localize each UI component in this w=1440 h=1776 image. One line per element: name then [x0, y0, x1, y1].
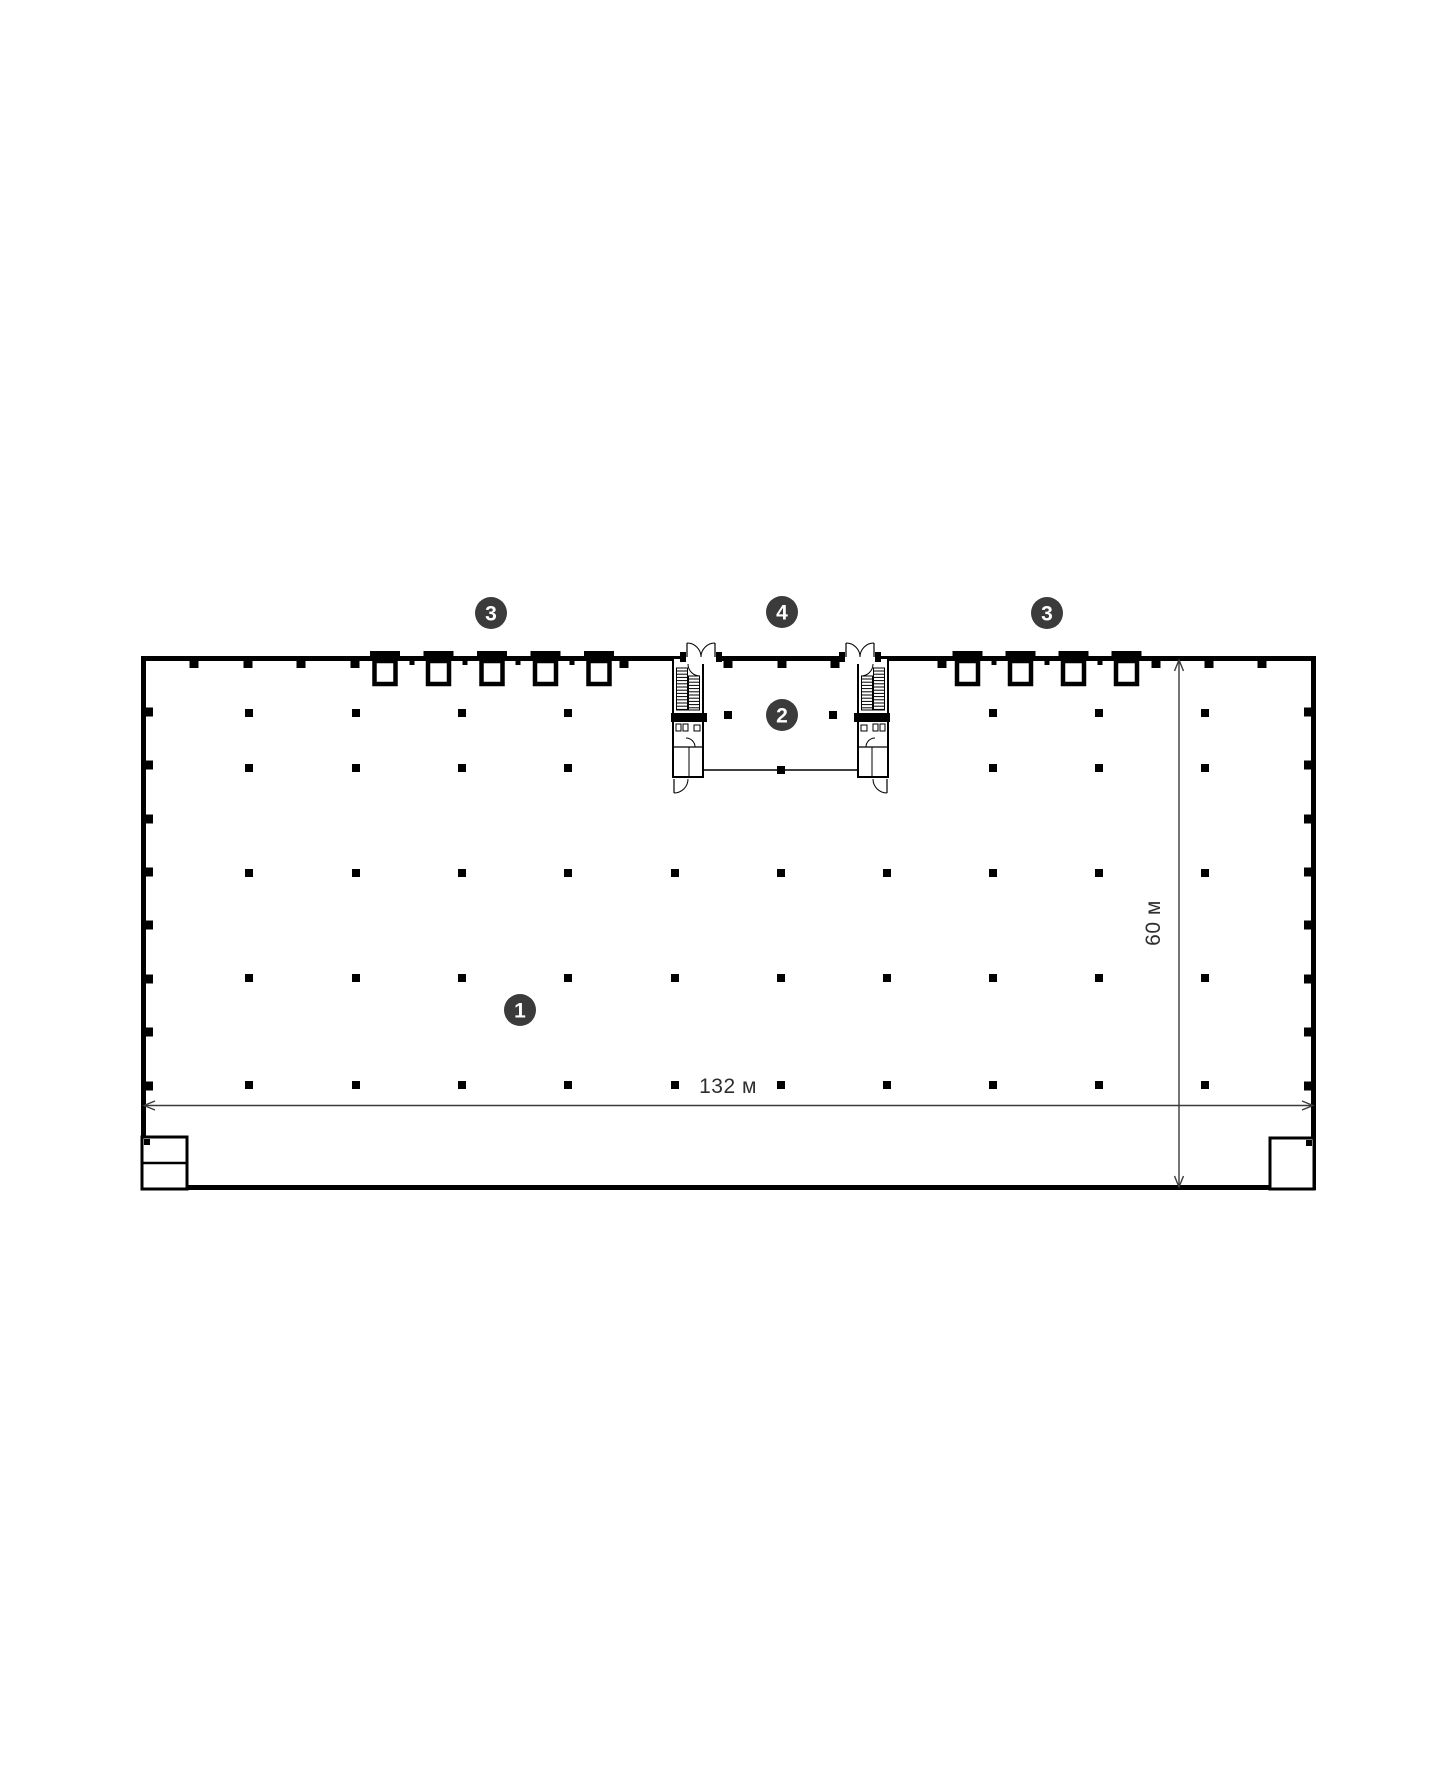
dock-door-lintel — [531, 651, 561, 660]
column — [564, 869, 572, 877]
marker-4: 4 — [766, 596, 798, 628]
column — [829, 711, 837, 719]
marker-number: 3 — [485, 603, 497, 626]
column — [883, 869, 891, 877]
pilaster — [1304, 815, 1312, 824]
column — [1095, 709, 1103, 717]
dock-door-lintel — [424, 651, 454, 660]
column — [989, 974, 997, 982]
dock-door — [482, 661, 503, 684]
stair-landing — [854, 713, 890, 722]
pilaster-small — [1098, 660, 1103, 665]
dock-door — [1010, 661, 1031, 684]
column — [245, 974, 253, 982]
column — [458, 1081, 466, 1089]
pilaster — [1304, 921, 1312, 930]
pilaster — [938, 660, 947, 668]
pilaster — [1304, 761, 1312, 770]
column — [564, 764, 572, 772]
pilaster — [1205, 660, 1214, 668]
column — [989, 869, 997, 877]
entry-jamb — [680, 652, 686, 662]
pilaster — [831, 660, 840, 668]
column — [352, 764, 360, 772]
dock-door — [535, 661, 556, 684]
column — [989, 1081, 997, 1089]
entry-jamb — [716, 652, 722, 662]
pilaster — [145, 708, 153, 717]
pilaster — [1304, 1082, 1312, 1091]
column — [458, 869, 466, 877]
column — [883, 1081, 891, 1089]
pilaster — [144, 1139, 150, 1145]
lobby-tick — [777, 766, 785, 774]
dimension-width-label: 132 м — [699, 1075, 757, 1098]
dimensions: 132 м60 м — [144, 660, 1313, 1187]
pilaster — [1304, 1028, 1312, 1037]
column — [245, 869, 253, 877]
dock-door — [1063, 661, 1084, 684]
column — [352, 974, 360, 982]
pilaster-small — [516, 660, 521, 665]
dock-door — [957, 661, 978, 684]
utility-rooms — [142, 1137, 1314, 1189]
pilaster-small — [992, 660, 997, 665]
floorplan-page: 132 м60 м12343 — [0, 0, 1440, 1776]
column — [989, 709, 997, 717]
dock-door-lintel — [584, 651, 614, 660]
pilaster — [145, 1028, 153, 1037]
column-grid — [245, 709, 1209, 1089]
column — [724, 711, 732, 719]
pilaster — [1306, 1140, 1312, 1146]
column — [352, 1081, 360, 1089]
marker-number: 2 — [776, 705, 788, 728]
pilaster — [145, 761, 153, 770]
stair-landing — [671, 713, 707, 722]
pilaster — [145, 1082, 153, 1091]
column — [1095, 974, 1103, 982]
column — [883, 974, 891, 982]
column — [671, 1081, 679, 1089]
entry-jamb — [875, 652, 881, 662]
pilaster — [1258, 660, 1267, 668]
column — [245, 709, 253, 717]
pilaster-small — [1045, 660, 1050, 665]
column — [352, 869, 360, 877]
marker-3: 3 — [1031, 597, 1063, 629]
column — [1095, 764, 1103, 772]
column — [1201, 709, 1209, 717]
pilaster — [1304, 975, 1312, 984]
dock-door-lintel — [1006, 651, 1036, 660]
column — [245, 1081, 253, 1089]
marker-number: 3 — [1041, 603, 1053, 626]
pilaster — [297, 660, 306, 668]
pilaster — [1152, 660, 1161, 668]
column — [564, 709, 572, 717]
column — [458, 764, 466, 772]
pilaster-small — [570, 660, 575, 665]
entrance-lobby — [703, 766, 858, 774]
pilaster — [724, 660, 733, 668]
pilaster — [1304, 868, 1312, 877]
column — [1201, 764, 1209, 772]
pilaster — [778, 660, 787, 668]
column — [671, 869, 679, 877]
dock-door — [1116, 661, 1137, 684]
marker-1: 1 — [504, 994, 536, 1026]
dock-door-lintel — [1059, 651, 1089, 660]
entry-jamb — [839, 652, 845, 662]
pilaster — [145, 921, 153, 930]
wall-pilasters — [145, 660, 1312, 1091]
dock-door — [589, 661, 610, 684]
column — [1201, 869, 1209, 877]
column — [245, 764, 253, 772]
pilaster — [190, 660, 199, 668]
floor-plan-drawing: 132 м60 м12343 — [0, 0, 1440, 1776]
pilaster — [145, 815, 153, 824]
door-swing — [674, 779, 688, 793]
pilaster — [244, 660, 253, 668]
column — [564, 974, 572, 982]
marker-number: 1 — [514, 1000, 526, 1023]
dock-door — [428, 661, 449, 684]
pilaster — [145, 868, 153, 877]
dimension-height-label: 60 м — [1142, 900, 1165, 946]
marker-number: 4 — [776, 602, 788, 625]
column — [458, 709, 466, 717]
building-outline — [144, 659, 1314, 1188]
column — [458, 974, 466, 982]
pilaster — [351, 660, 360, 668]
dock-door — [375, 661, 396, 684]
column — [1201, 974, 1209, 982]
pilaster — [145, 975, 153, 984]
dock-door-lintel — [477, 651, 507, 660]
pilaster-small — [463, 660, 468, 665]
column — [1095, 869, 1103, 877]
marker-2: 2 — [766, 699, 798, 731]
column — [777, 869, 785, 877]
column — [1095, 1081, 1103, 1089]
column — [671, 974, 679, 982]
column — [777, 974, 785, 982]
column — [777, 1081, 785, 1089]
dock-door-lintel — [953, 651, 983, 660]
dock-door-lintel — [1112, 651, 1142, 660]
column — [989, 764, 997, 772]
column — [564, 1081, 572, 1089]
dock-doors — [370, 651, 1142, 684]
building — [144, 659, 1314, 1188]
dock-door-lintel — [370, 651, 400, 660]
pilaster — [620, 660, 629, 668]
door-swing — [873, 779, 887, 793]
pilaster — [1304, 708, 1312, 717]
pilaster-small — [410, 660, 415, 665]
column — [1201, 1081, 1209, 1089]
column — [352, 709, 360, 717]
marker-3: 3 — [475, 597, 507, 629]
